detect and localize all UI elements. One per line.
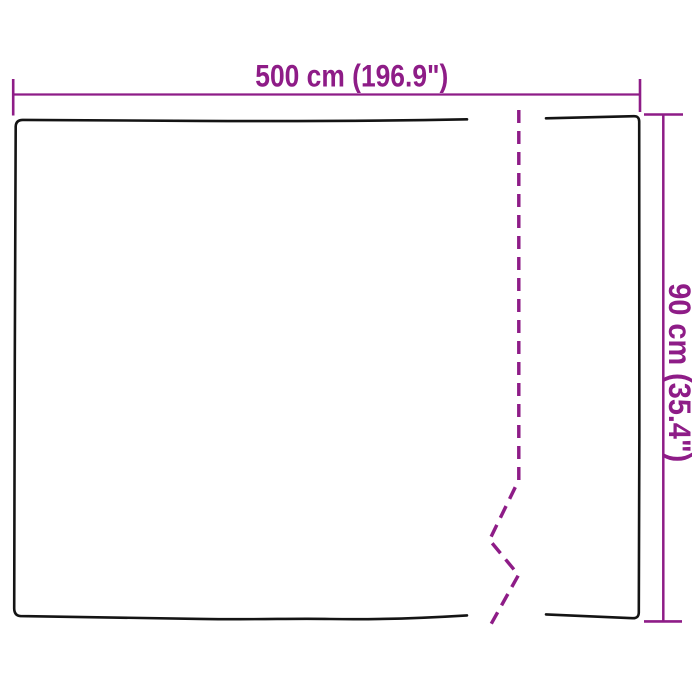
svg-text:500 cm (196.9"): 500 cm (196.9")	[255, 58, 448, 94]
svg-text:90 cm (35.4"): 90 cm (35.4")	[662, 283, 698, 462]
